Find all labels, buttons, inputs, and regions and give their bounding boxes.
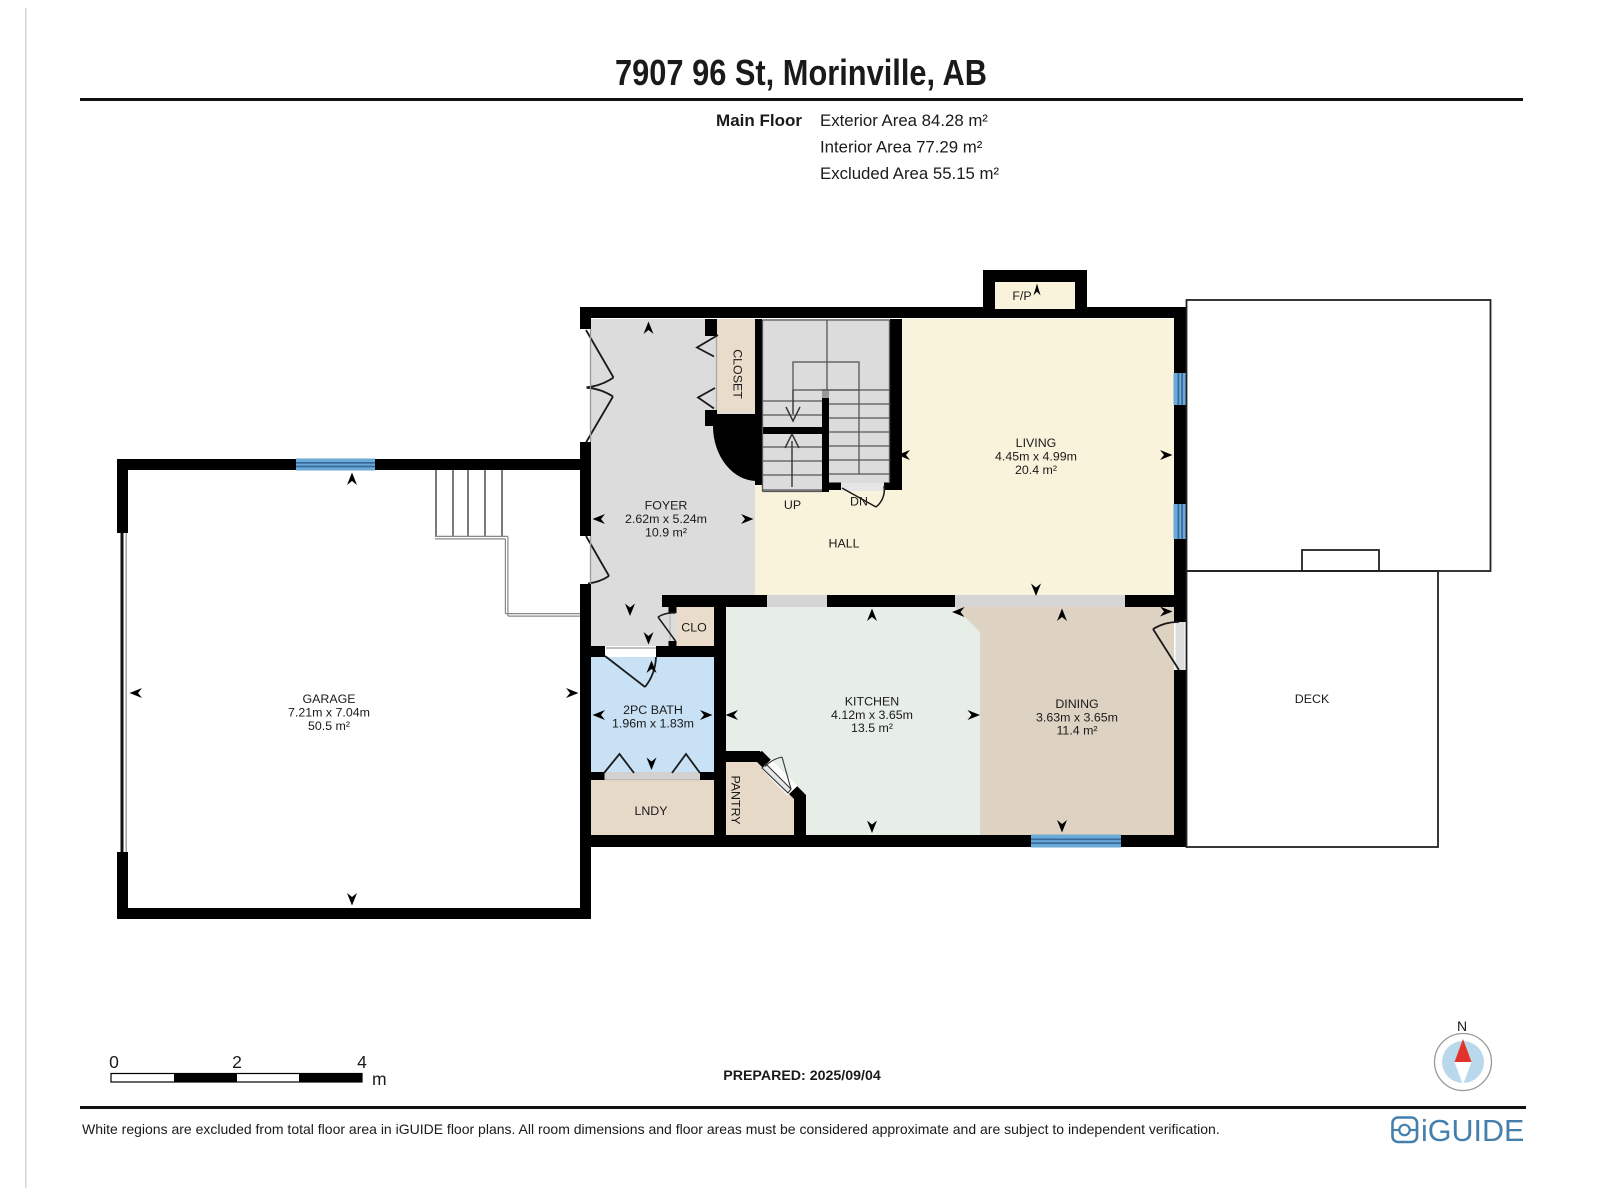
svg-text:4.12m x 3.65m: 4.12m x 3.65m: [831, 708, 913, 722]
svg-text:0: 0: [109, 1052, 119, 1072]
svg-text:4: 4: [357, 1052, 367, 1072]
svg-text:CLO: CLO: [681, 621, 707, 635]
svg-text:2PC BATH: 2PC BATH: [623, 703, 683, 717]
svg-text:PREPARED: 2025/09/04: PREPARED: 2025/09/04: [723, 1068, 881, 1084]
svg-text:White regions are excluded fro: White regions are excluded from total fl…: [82, 1121, 1220, 1137]
svg-text:7907 96 St, Morinville, AB: 7907 96 St, Morinville, AB: [615, 52, 987, 93]
svg-text:LIVING: LIVING: [1016, 436, 1057, 450]
svg-text:F/P: F/P: [1012, 289, 1031, 303]
svg-text:10.9 m²: 10.9 m²: [645, 526, 687, 540]
svg-text:KITCHEN: KITCHEN: [845, 695, 899, 709]
svg-text:GARAGE: GARAGE: [302, 692, 355, 706]
svg-text:Interior Area 77.29 m²: Interior Area 77.29 m²: [820, 138, 983, 157]
svg-text:20.4 m²: 20.4 m²: [1015, 463, 1057, 477]
svg-text:2.62m x 5.24m: 2.62m x 5.24m: [625, 512, 707, 526]
svg-text:DECK: DECK: [1295, 692, 1330, 706]
svg-text:13.5 m²: 13.5 m²: [851, 721, 893, 735]
svg-text:iGUIDE: iGUIDE: [1421, 1114, 1524, 1148]
svg-text:4.45m x 4.99m: 4.45m x 4.99m: [995, 450, 1077, 464]
svg-text:1.96m x 1.83m: 1.96m x 1.83m: [612, 717, 694, 731]
svg-text:3.63m x 3.65m: 3.63m x 3.65m: [1036, 711, 1118, 725]
svg-text:m: m: [372, 1069, 387, 1089]
svg-text:Exterior Area 84.28 m²: Exterior Area 84.28 m²: [820, 111, 988, 130]
svg-text:DN: DN: [850, 495, 868, 509]
svg-text:7.21m x 7.04m: 7.21m x 7.04m: [288, 706, 370, 720]
svg-text:11.4 m²: 11.4 m²: [1056, 724, 1097, 738]
svg-text:Main Floor: Main Floor: [716, 111, 802, 130]
svg-text:50.5 m²: 50.5 m²: [308, 719, 350, 733]
svg-text:UP: UP: [784, 498, 801, 512]
svg-text:CLOSET: CLOSET: [730, 349, 744, 399]
svg-text:2: 2: [232, 1052, 242, 1072]
svg-text:PANTRY: PANTRY: [729, 775, 743, 824]
svg-text:N: N: [1457, 1018, 1467, 1034]
svg-text:HALL: HALL: [829, 537, 860, 551]
svg-text:FOYER: FOYER: [645, 499, 688, 513]
svg-text:Excluded Area 55.15 m²: Excluded Area 55.15 m²: [820, 164, 1000, 183]
svg-text:LNDY: LNDY: [634, 804, 667, 818]
svg-text:DINING: DINING: [1055, 697, 1098, 711]
